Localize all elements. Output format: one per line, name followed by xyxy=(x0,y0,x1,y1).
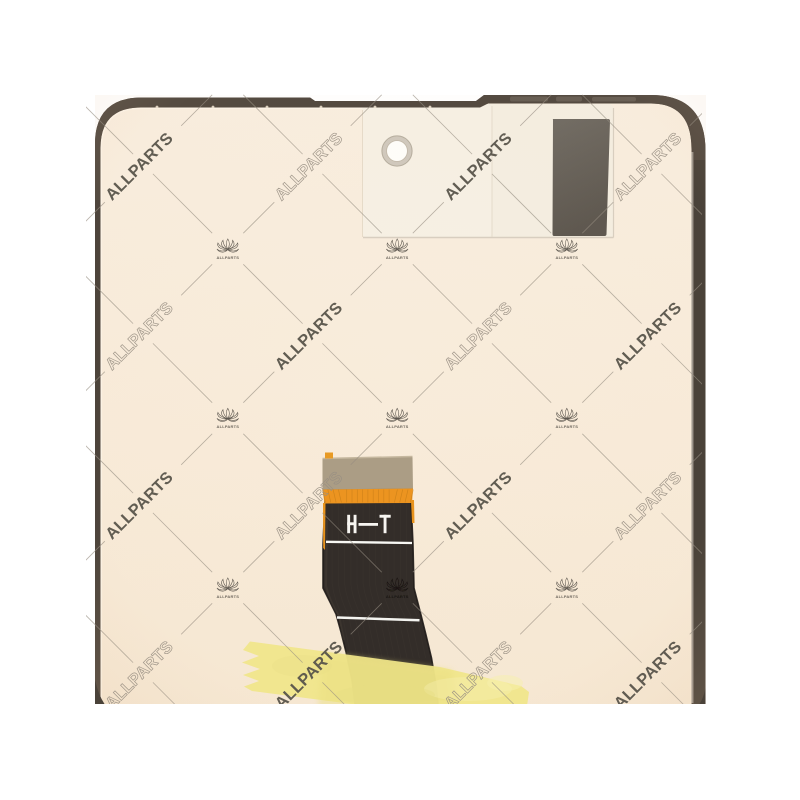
svg-text:ALLPARTS: ALLPARTS xyxy=(216,424,239,429)
svg-text:ALLPARTS: ALLPARTS xyxy=(216,594,239,599)
svg-text:ALLPARTS: ALLPARTS xyxy=(386,424,409,429)
svg-text:ALLPARTS: ALLPARTS xyxy=(216,255,239,260)
svg-text:ALLPARTS: ALLPARTS xyxy=(386,255,409,260)
svg-text:ALLPARTS: ALLPARTS xyxy=(555,594,578,599)
svg-text:ALLPARTS: ALLPARTS xyxy=(386,594,409,599)
svg-text:ALLPARTS: ALLPARTS xyxy=(555,255,578,260)
svg-text:ALLPARTS: ALLPARTS xyxy=(555,424,578,429)
